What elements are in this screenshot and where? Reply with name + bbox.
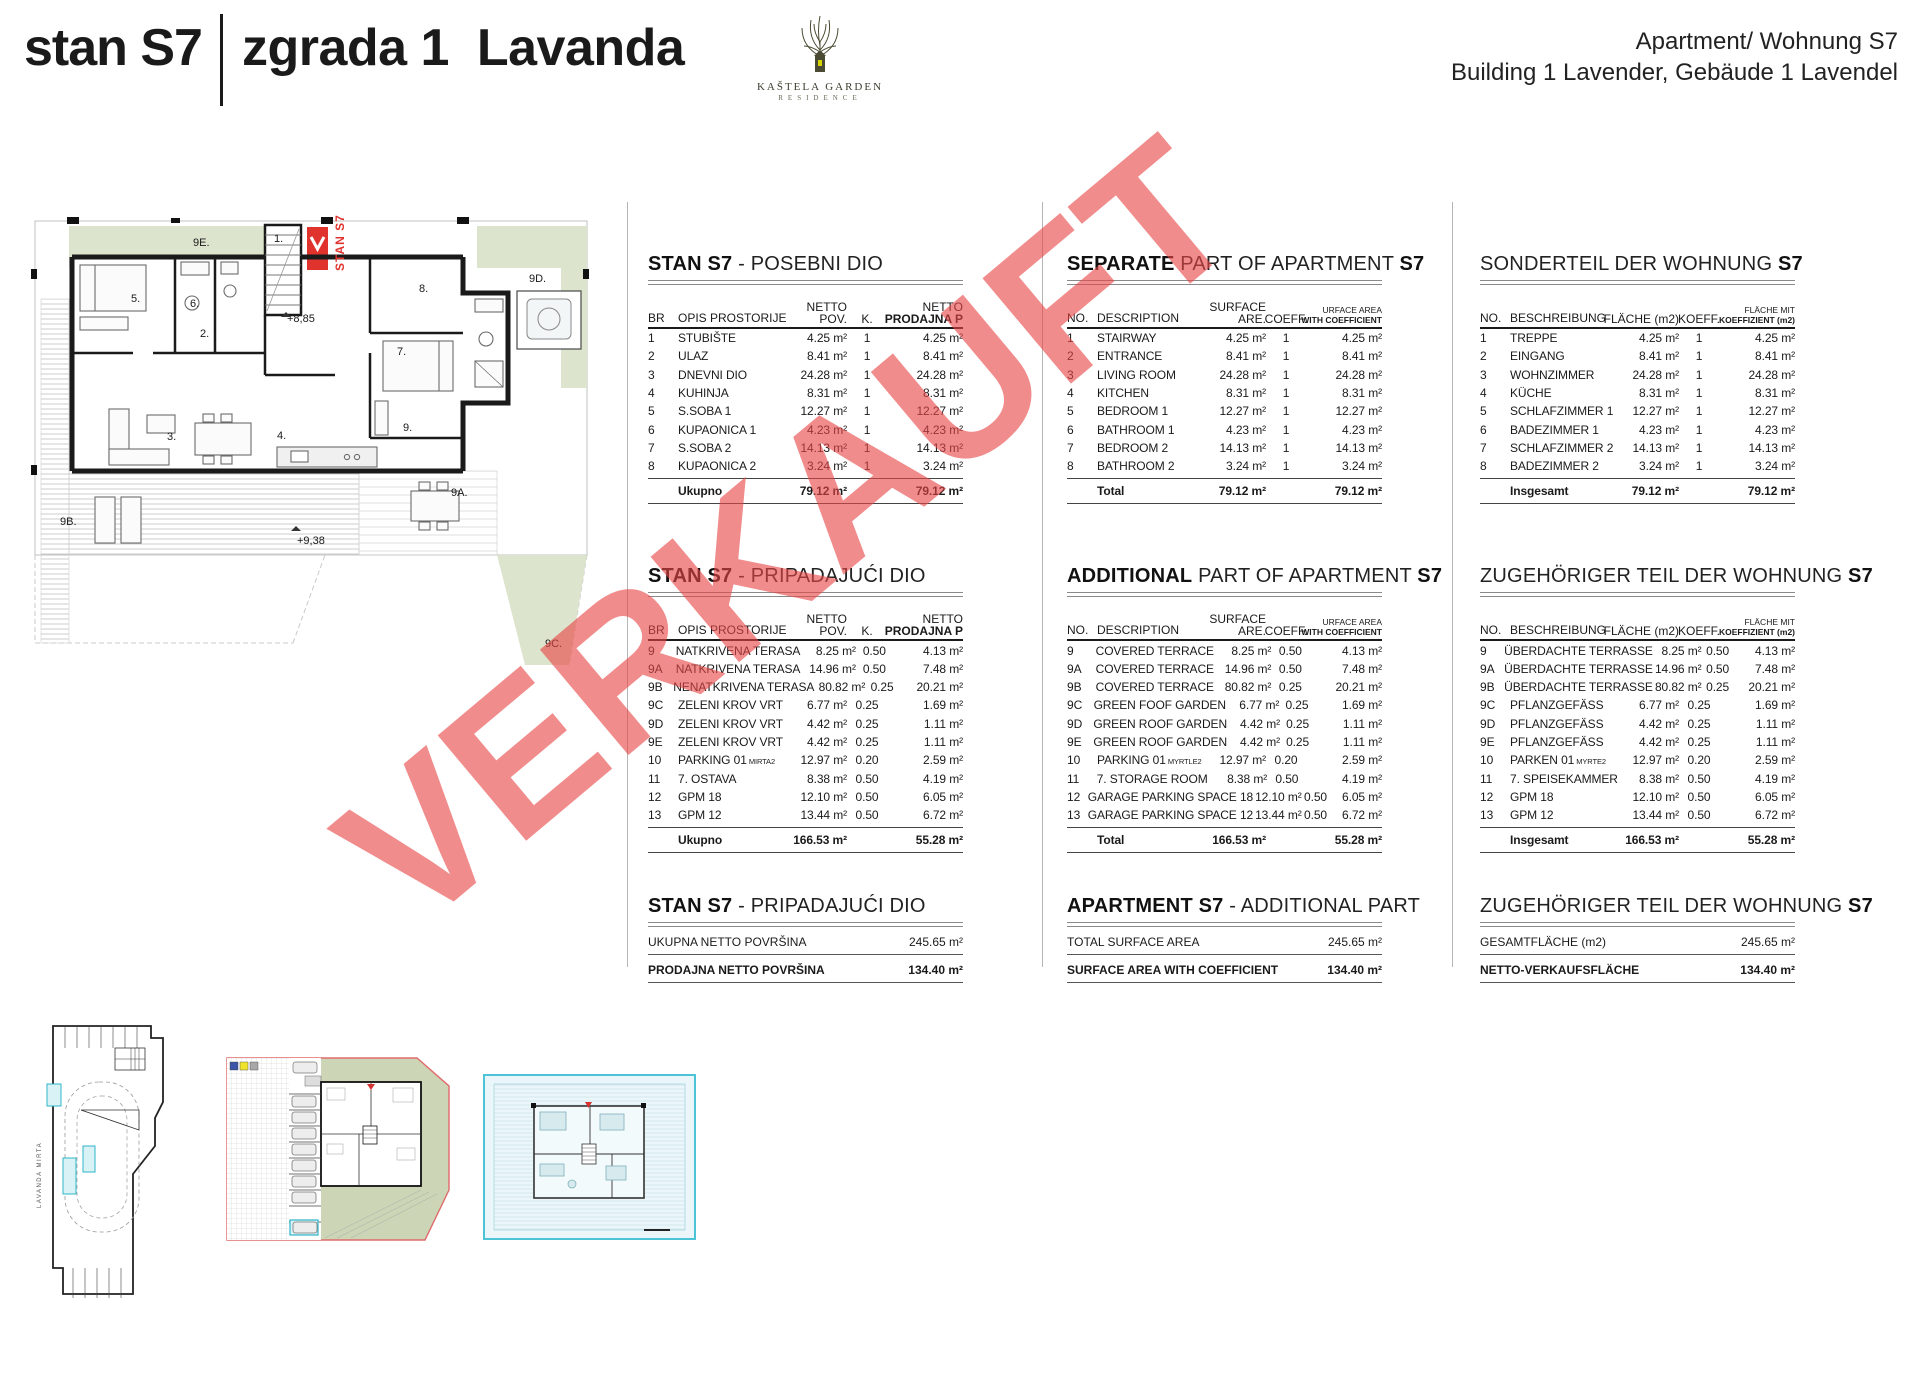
- summary-title-de: ZUGEHÖRIGER TEIL DER WOHNUNG S7: [1480, 895, 1795, 917]
- table-row: 8 BADEZIMMER 2 3.24 m² 1 3.24 m²: [1480, 457, 1795, 475]
- floorplan-label: 7.: [397, 346, 406, 358]
- summary-row-sale: SURFACE AREA WITH COEFFICIENT 134.40 m²: [1067, 957, 1382, 983]
- table-row: 9B ÜBERDACHTE TERRASSE 80.82 m² 0.25 20.…: [1480, 678, 1795, 696]
- table-row: 8 KUPAONICA 2 3.24 m² 1 3.24 m²: [648, 457, 963, 475]
- table-row: 12 GPM 18 12.10 m² 0.50 6.05 m²: [1480, 788, 1795, 806]
- header-divider: [220, 14, 223, 106]
- building-title: zgrada 1 Lavanda: [242, 18, 684, 78]
- table-row: 9C ZELENI KROV VRT 6.77 m² 0.25 1.69 m²: [648, 696, 963, 714]
- table-column-english: SEPARATE PART OF APARTMENT S7 NO. DESCRI…: [1067, 253, 1382, 983]
- floorplan-label: +9,38: [297, 535, 325, 547]
- floorplan-label: 9B.: [60, 516, 77, 528]
- roof-plan-thumbnail: [482, 1072, 697, 1242]
- table-row: 11 7. OSTAVA 8.38 m² 0.50 4.19 m²: [648, 769, 963, 787]
- table-row: 5 BEDROOM 1 12.27 m² 1 12.27 m²: [1067, 402, 1382, 420]
- table-row: 8 BATHROOM 2 3.24 m² 1 3.24 m²: [1067, 457, 1382, 475]
- table-title-en-1: SEPARATE PART OF APARTMENT S7: [1067, 253, 1382, 275]
- table-body-de-1: 1 TREPPE 4.25 m² 1 4.25 m² 2 EINGANG 8.4…: [1480, 329, 1795, 475]
- total-row-en-2: Total 166.53 m² 55.28 m²: [1067, 827, 1382, 853]
- table-title-hr-2: STAN S7 - PRIPADAJUĆI DIO: [648, 565, 963, 587]
- site-plan-thumbnail: [221, 1048, 455, 1247]
- table-head-en-2: NO. DESCRIPTION SURFACEARE. COEFF. URFAC…: [1067, 605, 1382, 641]
- table-row: 9D PFLANZGEFÄSS 4.42 m² 0.25 1.11 m²: [1480, 715, 1795, 733]
- table-row: 9C PFLANZGEFÄSS 6.77 m² 0.25 1.69 m²: [1480, 696, 1795, 714]
- table-row: 9A ÜBERDACHTE TERRASSE 14.96 m² 0.50 7.4…: [1480, 660, 1795, 678]
- floorplan-label: 9A.: [451, 487, 468, 499]
- table-row: 9 NATKRIVENA TERASA 8.25 m² 0.50 4.13 m²: [648, 641, 963, 659]
- floorplan-label: +8,85: [287, 313, 315, 325]
- table-column-german: SONDERTEIL DER WOHNUNG S7 NO. BESCHREIBU…: [1480, 253, 1795, 983]
- table-row: 9C GREEN FOOF GARDEN 6.77 m² 0.25 1.69 m…: [1067, 696, 1382, 714]
- table-row: 9A NATKRIVENA TERASA 14.96 m² 0.50 7.48 …: [648, 660, 963, 678]
- table-row: 12 GARAGE PARKING SPACE 18 12.10 m² 0.50…: [1067, 788, 1382, 806]
- floorplan-label: 1.: [274, 233, 283, 245]
- garage-plan-drawing: LAVANDA MIRTA: [35, 1018, 182, 1302]
- summary-row-sale: NETTO-VERKAUFSFLÄCHE 134.40 m²: [1480, 957, 1795, 983]
- unit-title: stan S7: [24, 18, 202, 78]
- divider-hr-en: [1042, 202, 1043, 967]
- table-body-en-1: 1 STAIRWAY 4.25 m² 1 4.25 m² 2 ENTRANCE …: [1067, 329, 1382, 475]
- table-row: 13 GARAGE PARKING SPACE 12 13.44 m² 0.50…: [1067, 806, 1382, 824]
- table-row: 1 TREPPE 4.25 m² 1 4.25 m²: [1480, 329, 1795, 347]
- table-body-de-2: 9 ÜBERDACHTE TERRASSE 8.25 m² 0.50 4.13 …: [1480, 641, 1795, 824]
- roof-plan-drawing: [482, 1072, 697, 1242]
- logo-subtitle: RESIDENCE: [735, 94, 905, 102]
- floorplan-label: 9E.: [193, 237, 210, 249]
- title-rule: [1480, 280, 1795, 285]
- floorplan-label: 6.: [190, 298, 199, 310]
- table-row: 9E ZELENI KROV VRT 4.42 m² 0.25 1.11 m²: [648, 733, 963, 751]
- table-row: 12 GPM 18 12.10 m² 0.50 6.05 m²: [648, 788, 963, 806]
- table-body-en-2: 9 COVERED TERRACE 8.25 m² 0.50 4.13 m² 9…: [1067, 641, 1382, 824]
- table-row: 9 ÜBERDACHTE TERRASSE 8.25 m² 0.50 4.13 …: [1480, 641, 1795, 659]
- apartment-floorplan: 9E. 9D. 1. STAN S7 +8,85 5. 6. 2. 8. 7. …: [25, 213, 605, 713]
- summary-row-total: UKUPNA NETTO POVRŠINA 245.65 m²: [648, 929, 963, 955]
- title-rule: [1480, 592, 1795, 597]
- table-row: 9E GREEN ROOF GARDEN 4.42 m² 0.25 1.11 m…: [1067, 733, 1382, 751]
- header-right-text: Apartment/ Wohnung S7 Building 1 Lavende…: [1451, 26, 1898, 88]
- table-row: 1 STUBIŠTE 4.25 m² 1 4.25 m²: [648, 329, 963, 347]
- floorplan-label: 8.: [419, 283, 428, 295]
- title-rule: [1067, 922, 1382, 927]
- table-title-en-2: ADDITIONAL PART OF APARTMENT S7: [1067, 565, 1382, 587]
- total-row-hr-2: Ukupno 166.53 m² 55.28 m²: [648, 827, 963, 853]
- total-row-de-2: Insgesamt 166.53 m² 55.28 m²: [1480, 827, 1795, 853]
- floorplan-label: 9D.: [529, 273, 546, 285]
- table-row: 11 7. SPEISEKAMMER 8.38 m² 0.50 4.19 m²: [1480, 769, 1795, 787]
- table-row: 3 LIVING ROOM 24.28 m² 1 24.28 m²: [1067, 366, 1382, 384]
- title-rule: [648, 280, 963, 285]
- table-row: 3 DNEVNI DIO 24.28 m² 1 24.28 m²: [648, 366, 963, 384]
- table-row: 13 GPM 12 13.44 m² 0.50 6.72 m²: [648, 806, 963, 824]
- table-title-de-1: SONDERTEIL DER WOHNUNG S7: [1480, 253, 1795, 275]
- summary-title-en: APARTMENT S7 - ADDITIONAL PART: [1067, 895, 1382, 917]
- table-row: 7 BEDROOM 2 14.13 m² 1 14.13 m²: [1067, 439, 1382, 457]
- total-row-hr-1: Ukupno 79.12 m² 79.12 m²: [648, 478, 963, 504]
- table-row: 10 PARKEN 01MYRTE2 12.97 m² 0.20 2.59 m²: [1480, 751, 1795, 769]
- table-row: 6 KUPAONICA 1 4.23 m² 1 4.23 m²: [648, 420, 963, 438]
- summary-row-sale: PRODAJNA NETTO POVRŠINA 134.40 m²: [648, 957, 963, 983]
- table-row: 2 ULAZ 8.41 m² 1 8.41 m²: [648, 347, 963, 365]
- floorplan-label: 5.: [131, 293, 140, 305]
- floorplan-label: 9.: [403, 422, 412, 434]
- floorplan-label: 9C.: [545, 638, 562, 650]
- table-row: 9 COVERED TERRACE 8.25 m² 0.50 4.13 m²: [1067, 641, 1382, 659]
- table-title-hr-1: STAN S7 - POSEBNI DIO: [648, 253, 963, 275]
- table-row: 4 KÜCHE 8.31 m² 1 8.31 m²: [1480, 384, 1795, 402]
- table-title-de-2: ZUGEHÖRIGER TEIL DER WOHNUNG S7: [1480, 565, 1795, 587]
- title-rule: [1067, 592, 1382, 597]
- apartment-datasheet-page: stan S7 zgrada 1 Lavanda KAŠTELA GARDEN …: [0, 0, 1920, 1392]
- table-row: 3 WOHNZIMMER 24.28 m² 1 24.28 m²: [1480, 366, 1795, 384]
- title-rule: [648, 922, 963, 927]
- garage-plan-thumbnail: LAVANDA MIRTA: [35, 1018, 182, 1302]
- total-row-en-1: Total 79.12 m² 79.12 m²: [1067, 478, 1382, 504]
- table-row: 11 7. STORAGE ROOM 8.38 m² 0.50 4.19 m²: [1067, 769, 1382, 787]
- tree-logo-icon: [778, 12, 862, 74]
- table-row: 9E PFLANZGEFÄSS 4.42 m² 0.25 1.11 m²: [1480, 733, 1795, 751]
- table-row: 6 BADEZIMMER 1 4.23 m² 1 4.23 m²: [1480, 420, 1795, 438]
- title-rule: [1067, 280, 1382, 285]
- table-row: 4 KUHINJA 8.31 m² 1 8.31 m²: [648, 384, 963, 402]
- stan-s7-marker: [307, 227, 328, 270]
- table-row: 5 S.SOBA 1 12.27 m² 1 12.27 m²: [648, 402, 963, 420]
- total-row-de-1: Insgesamt 79.12 m² 79.12 m²: [1480, 478, 1795, 504]
- floorplan-label: 4.: [277, 430, 286, 442]
- header-right-line1: Apartment/ Wohnung S7: [1451, 26, 1898, 57]
- table-head-hr-1: BR OPIS PROSTORIJE NETTOPOV. K. NETTOPRO…: [648, 293, 963, 329]
- table-row: 13 GPM 12 13.44 m² 0.50 6.72 m²: [1480, 806, 1795, 824]
- table-row: 9D ZELENI KROV VRT 4.42 m² 0.25 1.11 m²: [648, 715, 963, 733]
- table-head-de-1: NO. BESCHREIBUNG FLÄCHE (m2) KOEFF. FLÄC…: [1480, 293, 1795, 329]
- divider-plan-hr: [627, 202, 628, 967]
- header-right-line2: Building 1 Lavender, Gebäude 1 Lavendel: [1451, 57, 1898, 88]
- table-row: 10 PARKING 01MIRTA2 12.97 m² 0.20 2.59 m…: [648, 751, 963, 769]
- summary-row-total: GESAMTFLÄCHE (m2) 245.65 m²: [1480, 929, 1795, 955]
- table-row: 4 KITCHEN 8.31 m² 1 8.31 m²: [1067, 384, 1382, 402]
- table-row: 9A COVERED TERRACE 14.96 m² 0.50 7.48 m²: [1067, 660, 1382, 678]
- table-row: 7 S.SOBA 2 14.13 m² 1 14.13 m²: [648, 439, 963, 457]
- divider-en-de: [1452, 202, 1453, 967]
- summary-title-hr: STAN S7 - PRIPADAJUĆI DIO: [648, 895, 963, 917]
- table-body-hr-2: 9 NATKRIVENA TERASA 8.25 m² 0.50 4.13 m²…: [648, 641, 963, 824]
- summary-row-total: TOTAL SURFACE AREA 245.65 m²: [1067, 929, 1382, 955]
- table-row: 2 EINGANG 8.41 m² 1 8.41 m²: [1480, 347, 1795, 365]
- floorplan-label: 2.: [200, 328, 209, 340]
- logo-name: KAŠTELA GARDEN: [735, 81, 905, 93]
- table-row: 7 SCHLAFZIMMER 2 14.13 m² 1 14.13 m²: [1480, 439, 1795, 457]
- floorplan-drawing: [25, 213, 605, 713]
- table-head-en-1: NO. DESCRIPTION SURFACEARE. COEFF. URFAC…: [1067, 293, 1382, 329]
- table-row: 2 ENTRANCE 8.41 m² 1 8.41 m²: [1067, 347, 1382, 365]
- legend-squares: [230, 1062, 258, 1070]
- table-row: 1 STAIRWAY 4.25 m² 1 4.25 m²: [1067, 329, 1382, 347]
- floorplan-label: 3.: [167, 431, 176, 443]
- table-row: 6 BATHROOM 1 4.23 m² 1 4.23 m²: [1067, 420, 1382, 438]
- kastela-garden-logo: KAŠTELA GARDEN RESIDENCE: [735, 12, 905, 102]
- title-rule: [648, 592, 963, 597]
- table-row: 5 SCHLAFZIMMER 1 12.27 m² 1 12.27 m²: [1480, 402, 1795, 420]
- site-plan-drawing: [221, 1048, 455, 1247]
- floorplan-label: STAN S7: [333, 214, 347, 271]
- table-row: 9D GREEN ROOF GARDEN 4.42 m² 0.25 1.11 m…: [1067, 715, 1382, 733]
- title-rule: [1480, 922, 1795, 927]
- table-row: 9B NENATKRIVENA TERASA 80.82 m² 0.25 20.…: [648, 678, 963, 696]
- table-row: 10 PARKING 01MYRTLE2 12.97 m² 0.20 2.59 …: [1067, 751, 1382, 769]
- table-column-croatian: STAN S7 - POSEBNI DIO BR OPIS PROSTORIJE…: [648, 253, 963, 983]
- jacuzzi-room: [517, 291, 581, 349]
- table-row: 9B COVERED TERRACE 80.82 m² 0.25 20.21 m…: [1067, 678, 1382, 696]
- table-head-hr-2: BR OPIS PROSTORIJE NETTOPOV. K. NETTOPRO…: [648, 605, 963, 641]
- table-body-hr-1: 1 STUBIŠTE 4.25 m² 1 4.25 m² 2 ULAZ 8.41…: [648, 329, 963, 475]
- table-head-de-2: NO. BESCHREIBUNG FLÄCHE (m2) KOEFF. FLÄC…: [1480, 605, 1795, 641]
- garage-street-label: LAVANDA MIRTA: [37, 1142, 43, 1208]
